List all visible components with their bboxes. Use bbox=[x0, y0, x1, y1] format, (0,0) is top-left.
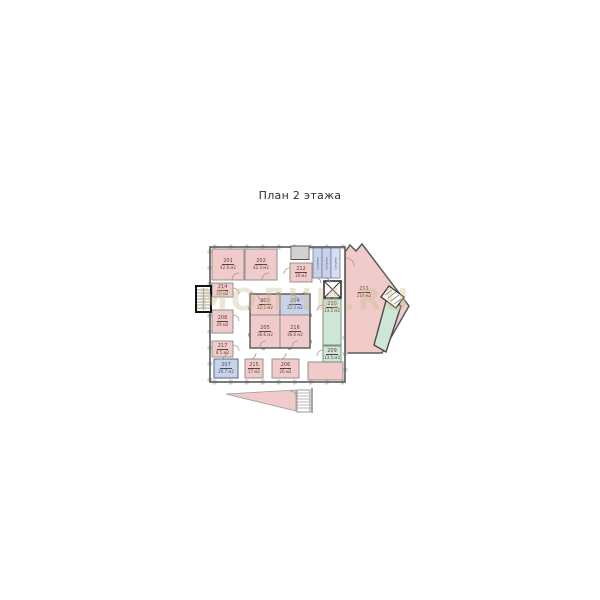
room-203-shape bbox=[250, 294, 280, 315]
room-208-shape bbox=[212, 310, 233, 333]
room-217-shape bbox=[212, 341, 233, 357]
wc-2-shape bbox=[322, 248, 331, 278]
room-209-shape bbox=[323, 346, 341, 362]
room-201-shape bbox=[212, 249, 244, 280]
room-206-shape bbox=[272, 359, 299, 378]
exterior-ramp bbox=[226, 390, 296, 411]
wc-1-shape bbox=[313, 248, 322, 278]
room-204-shape bbox=[280, 294, 310, 315]
room-215-shape bbox=[245, 359, 263, 378]
room-205-shape bbox=[250, 315, 280, 348]
room-202-shape bbox=[245, 249, 277, 280]
floor-plan-page: План 2 этажа МОЛНИ.RU bbox=[0, 0, 600, 600]
room-212-shape bbox=[290, 263, 312, 282]
room-207-shape bbox=[214, 359, 238, 378]
room-216-shape bbox=[280, 315, 310, 348]
room-bottom-right-shape bbox=[308, 362, 343, 380]
floor-plan-drawing bbox=[0, 0, 600, 600]
room-214-shape bbox=[212, 283, 233, 297]
room-210-shape bbox=[323, 299, 341, 345]
wc-3-shape bbox=[331, 248, 340, 278]
page-title: План 2 этажа bbox=[0, 189, 600, 202]
top-stairwell bbox=[291, 246, 309, 260]
